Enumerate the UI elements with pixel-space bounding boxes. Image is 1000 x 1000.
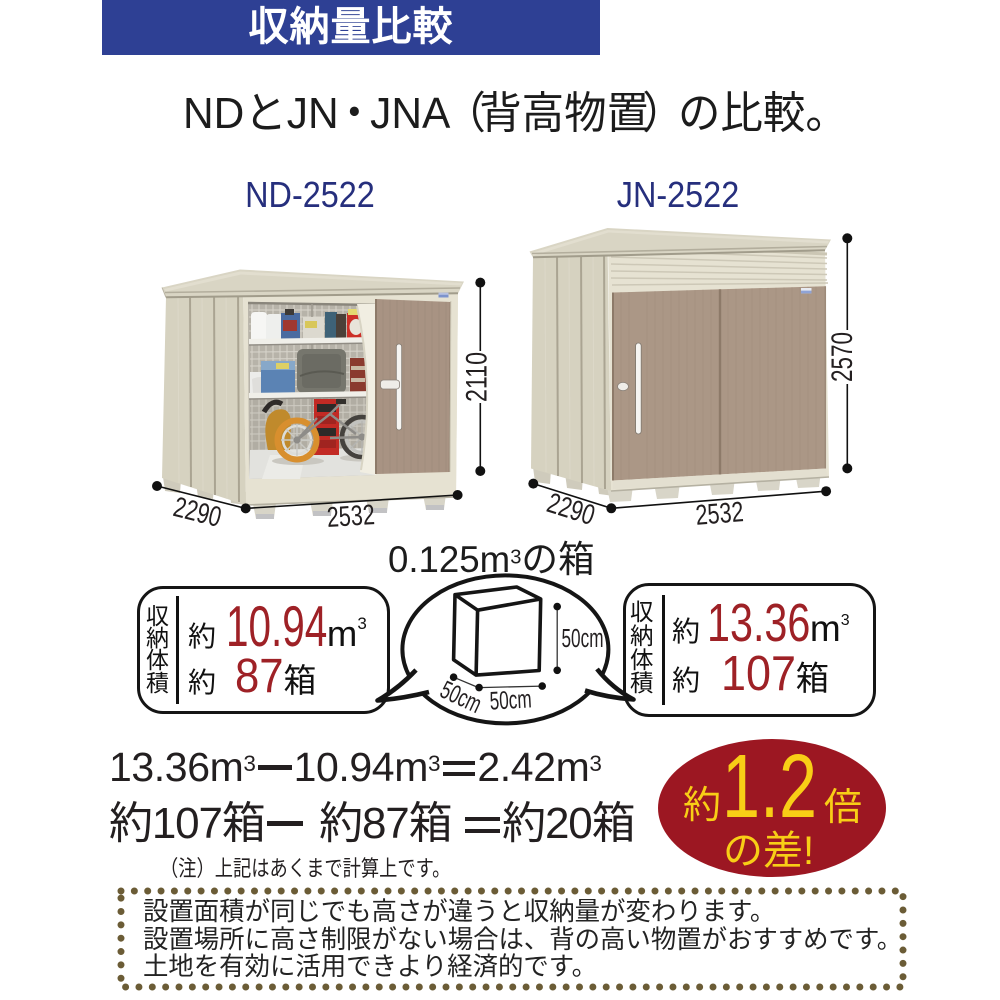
svg-text:50cm: 50cm — [562, 625, 604, 653]
svg-text:50cm: 50cm — [489, 685, 532, 715]
